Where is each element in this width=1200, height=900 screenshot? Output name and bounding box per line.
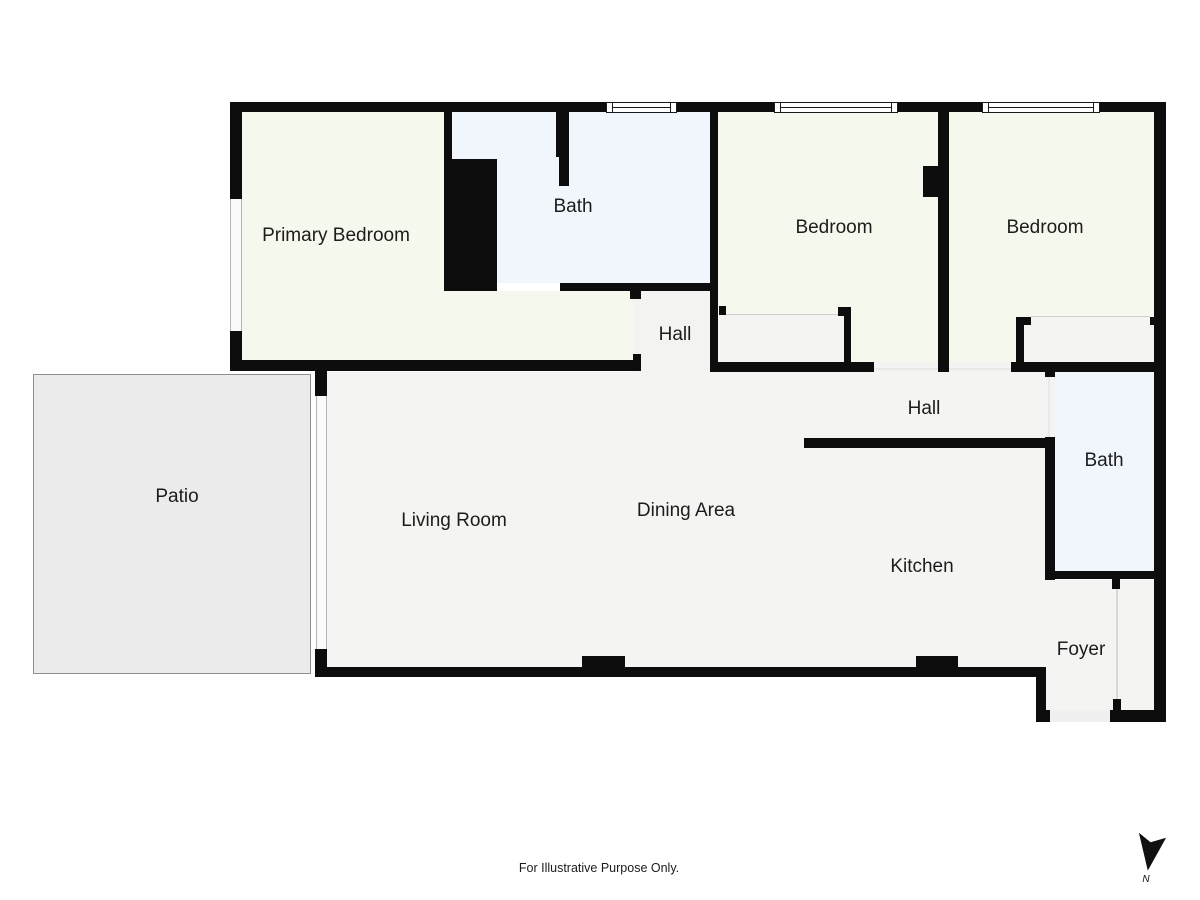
svg-text:N: N: [1142, 874, 1150, 885]
